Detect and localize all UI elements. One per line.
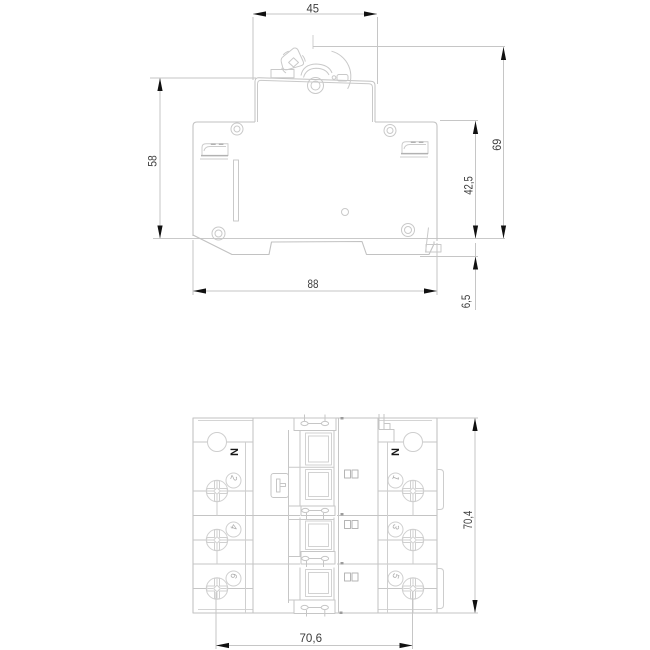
- svg-text:6,5: 6,5: [459, 294, 473, 308]
- svg-text:69: 69: [490, 139, 504, 151]
- svg-text:5: 5: [390, 572, 401, 580]
- svg-text:45: 45: [307, 2, 320, 16]
- svg-text:6: 6: [228, 572, 239, 580]
- svg-text:3: 3: [390, 523, 401, 531]
- svg-text:N: N: [389, 448, 401, 456]
- svg-text:1: 1: [390, 474, 401, 482]
- svg-text:88: 88: [308, 277, 319, 291]
- svg-text:70,6: 70,6: [300, 631, 323, 645]
- svg-text:58: 58: [146, 155, 160, 167]
- svg-text:4: 4: [228, 523, 239, 531]
- svg-text:2: 2: [228, 474, 239, 482]
- svg-text:N: N: [227, 448, 239, 456]
- svg-text:42,5: 42,5: [462, 176, 476, 195]
- svg-text:70,4: 70,4: [461, 510, 475, 529]
